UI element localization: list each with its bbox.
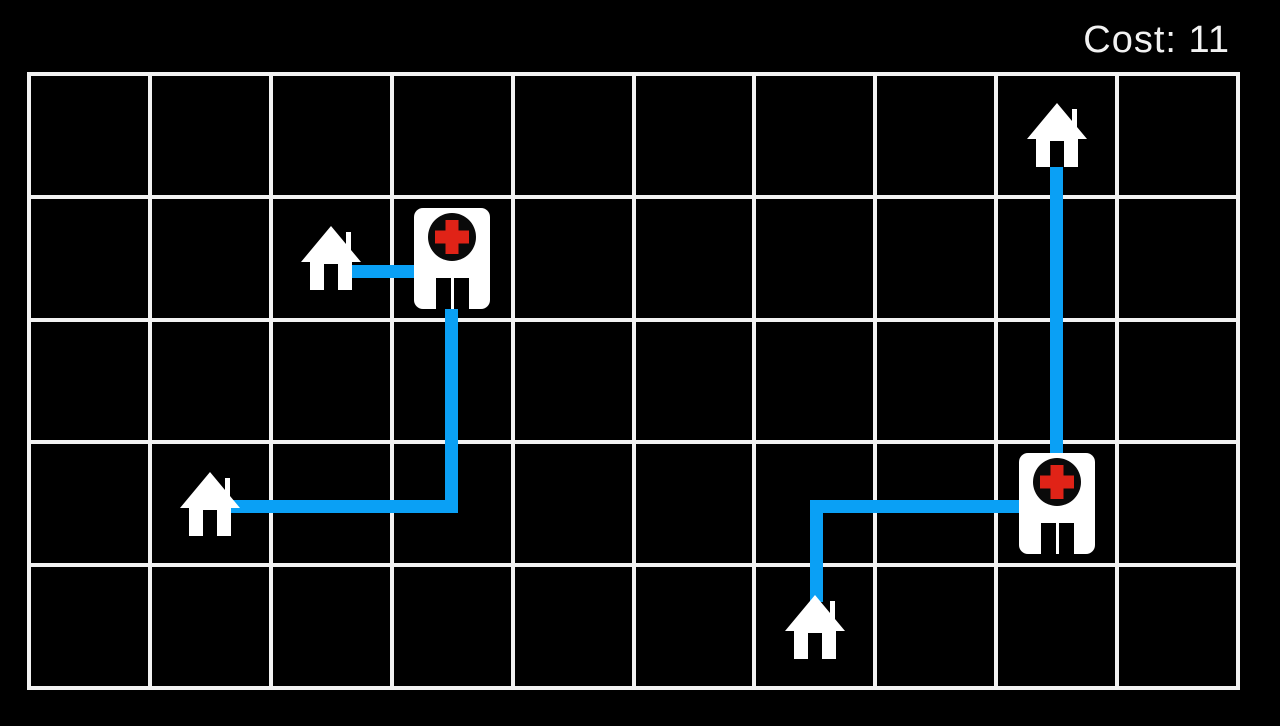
grid-line-vertical: [1115, 72, 1119, 690]
hospital-glyph: [1019, 453, 1095, 554]
grid-line-vertical: [269, 72, 273, 690]
route-path-segment: [445, 309, 458, 513]
house-icon[interactable]: [785, 595, 845, 659]
hospital-icon[interactable]: [1019, 453, 1095, 554]
grid-line-vertical: [873, 72, 877, 690]
route-path-segment: [810, 500, 823, 602]
grid-line-vertical: [148, 72, 152, 690]
grid-line-vertical: [632, 72, 636, 690]
house-glyph: [785, 595, 845, 659]
route-path-segment: [230, 500, 458, 513]
grid-line-vertical: [994, 72, 998, 690]
grid-line-horizontal: [27, 563, 1240, 567]
grid-line-vertical: [511, 72, 515, 690]
grid-line-vertical: [27, 72, 31, 690]
route-path-segment: [1050, 167, 1063, 458]
cost-display: Cost: 11: [1083, 19, 1230, 62]
grid-line-vertical: [390, 72, 394, 690]
game-board[interactable]: [0, 0, 1280, 726]
grid-line-vertical: [752, 72, 756, 690]
route-path-segment: [810, 500, 1019, 513]
grid-line-horizontal: [27, 72, 1240, 76]
grid-line-horizontal: [27, 686, 1240, 690]
house-icon[interactable]: [301, 226, 361, 290]
house-icon[interactable]: [180, 472, 240, 536]
hospital-glyph: [414, 208, 490, 309]
route-path-segment: [352, 265, 416, 278]
house-glyph: [1027, 103, 1087, 167]
grid-line-vertical: [1236, 72, 1240, 690]
house-glyph: [301, 226, 361, 290]
hospital-icon[interactable]: [414, 208, 490, 309]
house-glyph: [180, 472, 240, 536]
house-icon[interactable]: [1027, 103, 1087, 167]
